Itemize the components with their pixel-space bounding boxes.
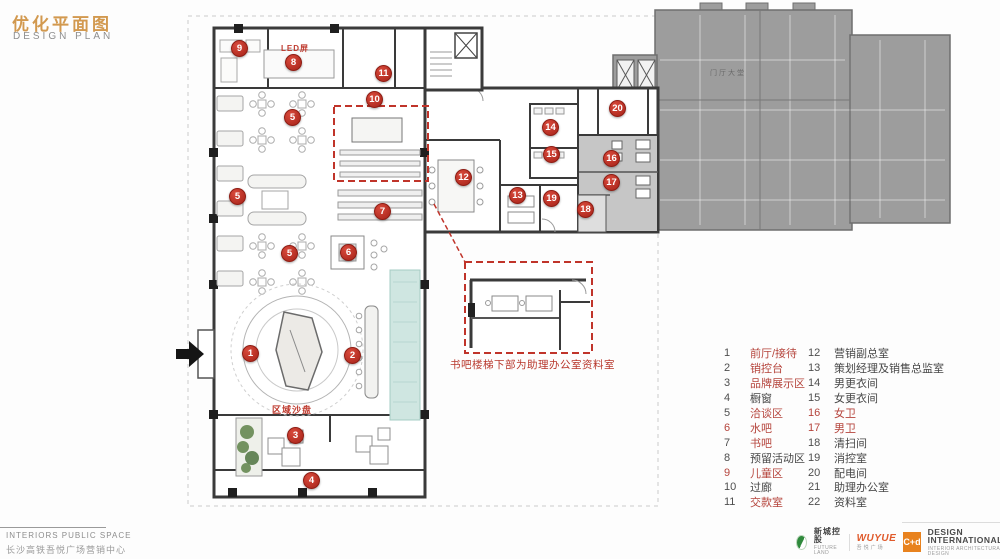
legend-row-19: 19消控室 (808, 450, 988, 465)
led-screen-label: LED屏 (281, 43, 309, 54)
legend-row-3: 3品牌展示区 (724, 376, 820, 391)
futureland-logo-icon (796, 535, 807, 550)
footer-divider-right (902, 522, 1000, 523)
plan-marker-13: 13 (509, 187, 526, 204)
legend-label: 预留活动区 (750, 450, 805, 466)
legend-row-2: 2销控台 (724, 361, 820, 376)
plan-marker-1: 1 (242, 345, 259, 362)
legend-label: 男卫 (834, 420, 856, 436)
legend-number: 2 (724, 362, 750, 374)
legend-row-8: 8预留活动区 (724, 450, 820, 465)
legend-number: 22 (808, 496, 834, 508)
legend-label: 橱窗 (750, 390, 772, 406)
legend-row-21: 21助理办公室 (808, 480, 988, 495)
plan-marker-6: 6 (340, 244, 357, 261)
futureland-name-en: FUTURE LAND (814, 546, 842, 556)
legend-row-4: 4橱窗 (724, 391, 820, 406)
legend-label: 交款室 (750, 494, 783, 510)
legend-label: 男更衣间 (834, 375, 878, 391)
futureland-name-cn: 新城控股 (814, 528, 842, 544)
legend-number: 21 (808, 481, 834, 493)
legend-number: 8 (724, 452, 750, 464)
logo-group: 新城控股 FUTURE LAND WUYUE 吾悦广场 C+d DESIGN I… (796, 529, 1000, 555)
legend-row-7: 7书吧 (724, 435, 820, 450)
legend-label: 清扫间 (834, 435, 867, 451)
legend-row-12: 12营销副总室 (808, 346, 988, 361)
legend-number: 20 (808, 467, 834, 479)
legend-number: 14 (808, 377, 834, 389)
design-firm-logo-icon: C+d (903, 532, 920, 552)
legend-label: 书吧 (750, 435, 772, 451)
legend-label: 女更衣间 (834, 390, 878, 406)
plan-marker-17: 17 (603, 174, 620, 191)
legend-number: 10 (724, 481, 750, 493)
legend-row-22: 22资料室 (808, 495, 988, 510)
design-plan-slide: 优化平面图 DESIGN PLAN LED屏 区域沙盘 书吧楼梯下部为助理办公室… (0, 0, 1000, 559)
legend-label: 儿童区 (750, 465, 783, 481)
plan-marker-20: 20 (609, 100, 626, 117)
legend-number: 7 (724, 437, 750, 449)
plan-marker-9: 9 (231, 40, 248, 57)
footer-label: INTERIORS PUBLIC SPACE (6, 531, 131, 540)
design-firm-logo: DESIGN INTERNATIONAL INTERIOR ARCHITECTU… (928, 528, 1000, 557)
plan-marker-11: 11 (375, 65, 392, 82)
legend-number: 1 (724, 347, 750, 359)
legend-row-9: 9儿童区 (724, 465, 820, 480)
legend-number: 17 (808, 422, 834, 434)
plan-marker-16: 16 (603, 150, 620, 167)
design-firm-name: DESIGN INTERNATIONAL (928, 528, 1000, 545)
plan-marker-5b: 5 (229, 188, 246, 205)
wuyue-name-en: WUYUE (857, 534, 897, 544)
legend-row-16: 16女卫 (808, 406, 988, 421)
legend-number: 18 (808, 437, 834, 449)
plan-marker-7: 7 (374, 203, 391, 220)
futureland-logo: 新城控股 FUTURE LAND (814, 528, 842, 556)
footer-project-name: 长沙高铁吾悦广场营销中心 (6, 543, 126, 556)
legend-number: 5 (724, 407, 750, 419)
legend-row-5: 5洽谈区 (724, 406, 820, 421)
legend-number: 4 (724, 392, 750, 404)
plan-marker-2: 2 (344, 347, 361, 364)
legend-number: 12 (808, 347, 834, 359)
plan-marker-10: 10 (366, 91, 383, 108)
inset-caption: 书吧楼梯下部为助理办公室资料室 (450, 357, 615, 372)
legend-row-11: 11交款室 (724, 495, 820, 510)
legend-number: 16 (808, 407, 834, 419)
tower-footprint (613, 3, 950, 230)
legend-column-1: 1前厅/接待2销控台3品牌展示区4橱窗5洽谈区6水吧7书吧8预留活动区9儿童区1… (724, 346, 820, 510)
legend-label: 洽谈区 (750, 405, 783, 421)
region-sandtable-label: 区域沙盘 (272, 403, 312, 416)
plan-marker-8: 8 (285, 54, 302, 71)
legend-number: 6 (724, 422, 750, 434)
plan-marker-14: 14 (542, 119, 559, 136)
plan-marker-18: 18 (577, 201, 594, 218)
page-subtitle: DESIGN PLAN (13, 31, 113, 42)
legend-label: 策划经理及销售总监室 (834, 360, 944, 376)
wuyue-logo: WUYUE 吾悦广场 (849, 534, 897, 551)
plan-marker-12: 12 (455, 169, 472, 186)
legend-row-6: 6水吧 (724, 420, 820, 435)
legend-label: 消控室 (834, 450, 867, 466)
footer-divider (0, 527, 106, 528)
plan-marker-3: 3 (287, 427, 304, 444)
planter (236, 418, 262, 476)
legend-row-15: 15女更衣间 (808, 391, 988, 406)
legend-row-18: 18清扫间 (808, 435, 988, 450)
legend-number: 11 (724, 496, 750, 508)
legend-label: 前厅/接待 (750, 345, 797, 361)
legend-label: 女卫 (834, 405, 856, 421)
wuyue-name-cn: 吾悦广场 (857, 546, 897, 551)
legend-label: 营销副总室 (834, 345, 889, 361)
legend-label: 品牌展示区 (750, 375, 805, 391)
legend-number: 9 (724, 467, 750, 479)
plan-marker-4: 4 (303, 472, 320, 489)
legend-column-2: 12营销副总室13策划经理及销售总监室14男更衣间15女更衣间16女卫17男卫1… (808, 346, 988, 510)
plan-marker-5a: 5 (284, 109, 301, 126)
plan-marker-5c: 5 (281, 245, 298, 262)
legend-label: 过廊 (750, 479, 772, 495)
legend-row-20: 20配电间 (808, 465, 988, 480)
legend-number: 3 (724, 377, 750, 389)
legend-label: 资料室 (834, 494, 867, 510)
legend-row-10: 10过廊 (724, 480, 820, 495)
legend-row-14: 14男更衣间 (808, 376, 988, 391)
legend-number: 13 (808, 362, 834, 374)
legend-number: 15 (808, 392, 834, 404)
water-feature (390, 270, 420, 420)
legend-row-1: 1前厅/接待 (724, 346, 820, 361)
legend-row-13: 13策划经理及销售总监室 (808, 361, 988, 376)
tower-lobby-label: 门厅大堂 (710, 68, 746, 78)
legend-row-17: 17男卫 (808, 420, 988, 435)
plan-marker-15: 15 (543, 146, 560, 163)
design-firm-subtitle: INTERIOR ARCHITECTURAL DESIGN (928, 547, 1000, 557)
legend-label: 水吧 (750, 420, 772, 436)
legend-label: 助理办公室 (834, 479, 889, 495)
legend-label: 销控台 (750, 360, 783, 376)
legend-number: 19 (808, 452, 834, 464)
plan-marker-19: 19 (543, 190, 560, 207)
legend-label: 配电间 (834, 465, 867, 481)
